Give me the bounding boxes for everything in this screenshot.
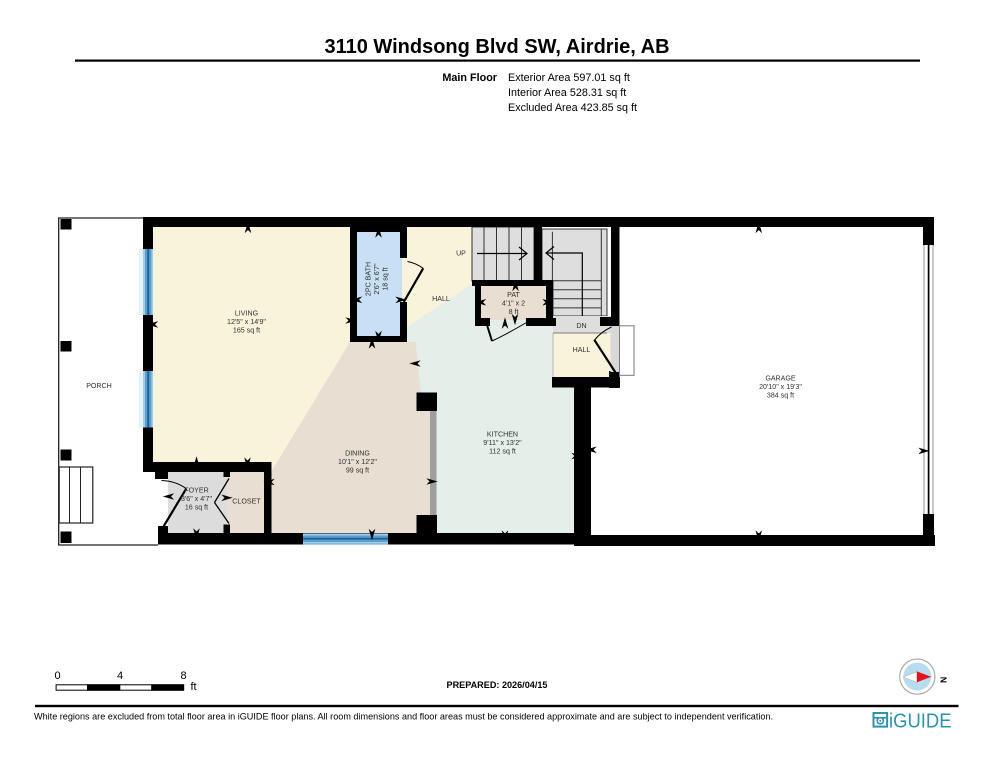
svg-text:CLOSET: CLOSET	[232, 498, 261, 506]
svg-text:12'5" x 14'9": 12'5" x 14'9"	[227, 318, 266, 326]
svg-text:2'6" x 6'7": 2'6" x 6'7"	[373, 263, 381, 294]
svg-text:DN: DN	[576, 322, 586, 330]
svg-text:Exterior Area 597.01 sq ft: Exterior Area 597.01 sq ft	[508, 72, 630, 84]
svg-text:DINING: DINING	[345, 450, 370, 458]
svg-text:4'1" x 2: 4'1" x 2	[502, 300, 525, 308]
svg-text:3110 Windsong Blvd SW, Airdrie: 3110 Windsong Blvd SW, Airdrie, AB	[324, 36, 669, 58]
svg-text:iGUIDE: iGUIDE	[889, 710, 952, 733]
svg-text:3'6" x 4'7": 3'6" x 4'7"	[181, 495, 212, 503]
svg-text:165 sq ft: 165 sq ft	[233, 327, 260, 335]
svg-text:FOYER: FOYER	[184, 487, 208, 495]
svg-text:9'11" x 13'2": 9'11" x 13'2"	[483, 439, 522, 447]
svg-text:18 sq ft: 18 sq ft	[382, 267, 390, 290]
svg-text:16 sq ft: 16 sq ft	[185, 504, 208, 512]
svg-text:HALL: HALL	[573, 346, 591, 354]
svg-text:LIVING: LIVING	[235, 310, 258, 318]
svg-text:2PC BATH: 2PC BATH	[365, 262, 373, 296]
svg-text:ft: ft	[191, 681, 197, 693]
svg-text:8 ft: 8 ft	[509, 308, 519, 316]
svg-text:384 sq ft: 384 sq ft	[767, 392, 794, 400]
svg-text:HALL: HALL	[432, 295, 450, 303]
svg-text:8: 8	[180, 670, 186, 682]
svg-text:PAT: PAT	[507, 291, 520, 299]
svg-text:GARAGE: GARAGE	[765, 375, 796, 383]
svg-text:KITCHEN: KITCHEN	[487, 431, 518, 439]
svg-text:Main Floor: Main Floor	[442, 72, 497, 84]
svg-text:20'10" x 19'3": 20'10" x 19'3"	[759, 383, 802, 391]
svg-text:White regions are excluded fro: White regions are excluded from total fl…	[34, 712, 773, 722]
svg-text:UP: UP	[456, 250, 466, 258]
svg-text:4: 4	[117, 670, 123, 682]
svg-text:PREPARED: 2026/04/15: PREPARED: 2026/04/15	[447, 680, 548, 690]
svg-text:99 sq ft: 99 sq ft	[346, 467, 369, 475]
svg-text:N: N	[939, 677, 949, 683]
svg-text:PORCH: PORCH	[86, 382, 112, 390]
svg-text:10'1" x 12'2": 10'1" x 12'2"	[338, 458, 377, 466]
svg-text:112 sq ft: 112 sq ft	[489, 448, 516, 456]
svg-text:Interior Area 528.31 sq ft: Interior Area 528.31 sq ft	[508, 87, 626, 99]
svg-text:0: 0	[54, 670, 60, 682]
svg-text:Excluded Area 423.85 sq ft: Excluded Area 423.85 sq ft	[508, 102, 637, 114]
